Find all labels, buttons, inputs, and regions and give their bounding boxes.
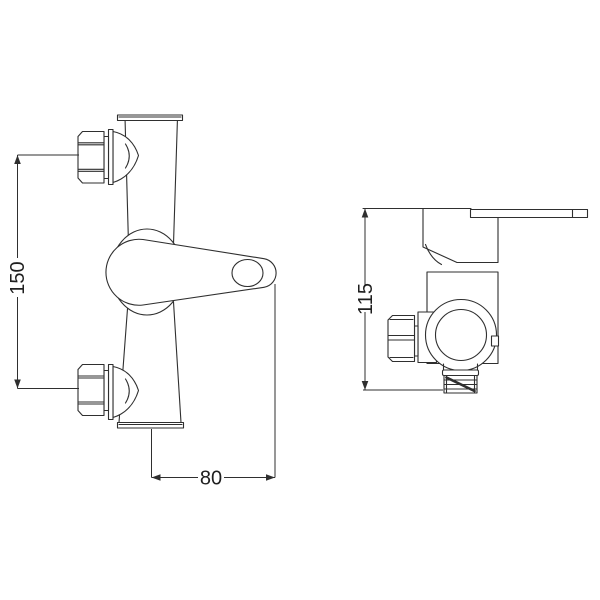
side-inlet-nut (388, 316, 415, 362)
outlet-collar (443, 370, 479, 376)
body-top-cap (118, 115, 183, 121)
arrow-down-icon (362, 381, 369, 390)
dimension-inlet-spacing: 150 (7, 155, 79, 389)
lever-handle (106, 239, 276, 305)
bottom-escutcheon-flange (109, 365, 114, 420)
mixer-technical-drawing: 150 80 (0, 0, 600, 600)
bottom-inlet-neck (104, 371, 109, 411)
side-lever-handle (471, 210, 588, 218)
body-column-upper (125, 118, 178, 245)
arrow-left-icon (152, 474, 161, 481)
technical-drawing-page: 150 80 (0, 0, 600, 600)
inlet-spacing-dimension-label: 150 (7, 261, 29, 294)
arrow-up-icon (362, 209, 369, 218)
bottom-inlet-nut (78, 365, 104, 416)
arrow-down-icon (14, 380, 21, 389)
diverter-knob-outer (426, 300, 497, 371)
arrow-up-icon (14, 155, 21, 164)
top-inlet-nut (78, 132, 104, 184)
side-view (363, 209, 588, 394)
body-height-dimension-label: 115 (355, 283, 377, 315)
body-clip-notch (492, 336, 499, 346)
arrow-right-icon (266, 474, 275, 481)
top-escutcheon-flange (109, 130, 114, 185)
body-bottom-cap (118, 423, 184, 429)
top-inlet-neck (104, 137, 109, 179)
handle-width-dimension-label: 80 (200, 468, 222, 490)
front-view (78, 115, 276, 428)
